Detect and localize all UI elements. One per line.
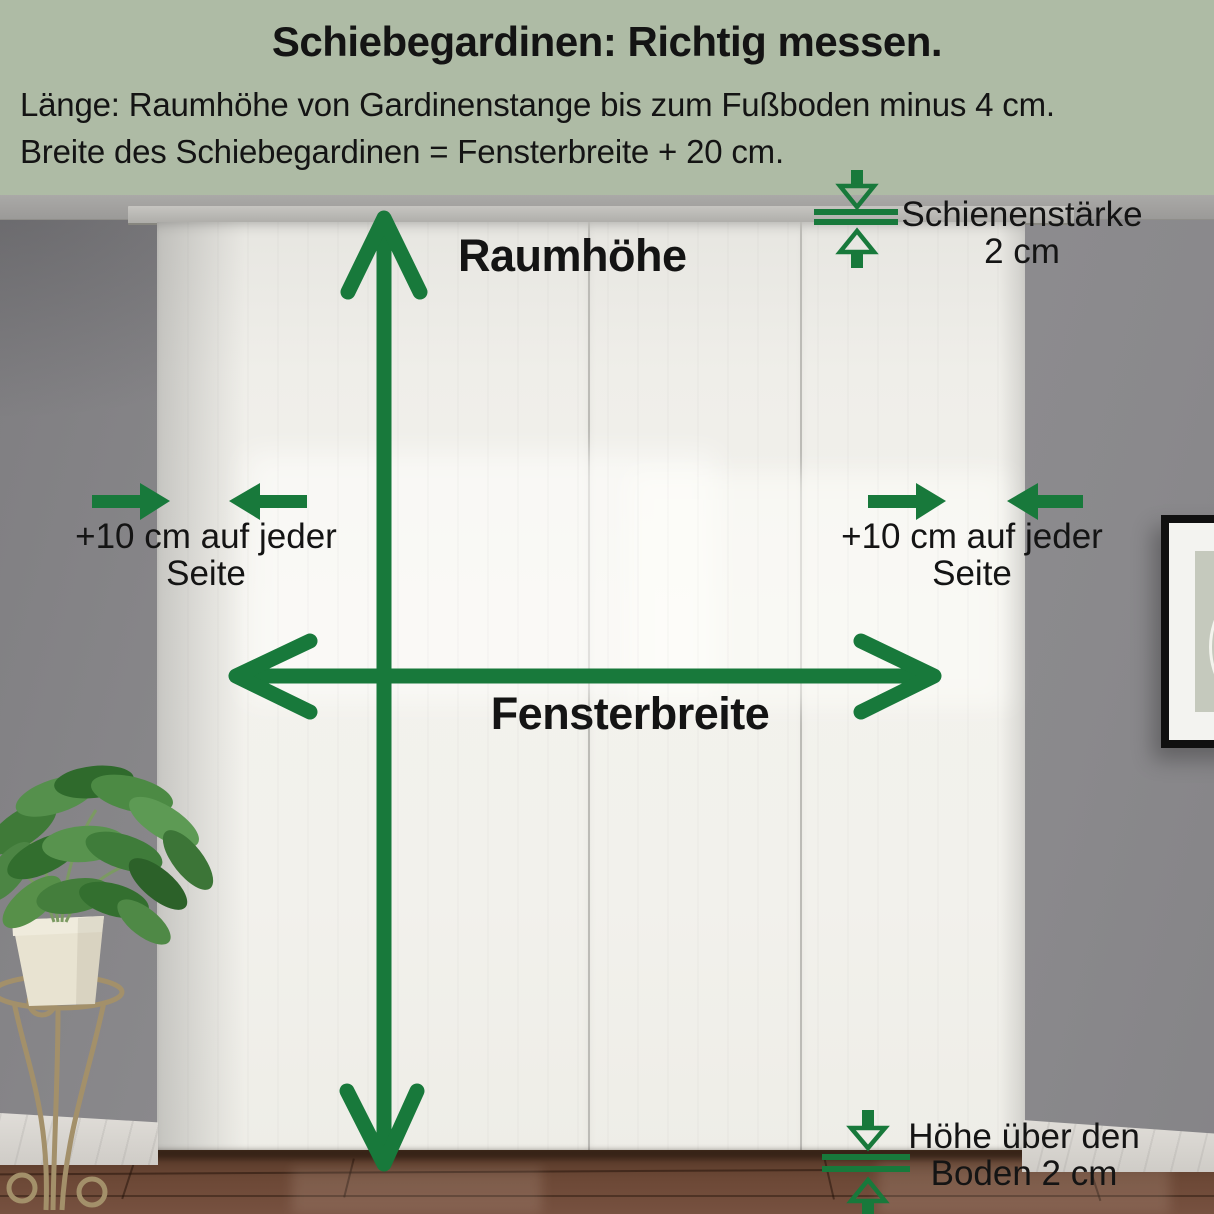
plant-stand [0, 976, 122, 1210]
instruction-line-2: Breite des Schiebegardinen = Fensterbrei… [20, 133, 784, 171]
curtain-floor-shadow [150, 1150, 1030, 1159]
picture-art [1195, 551, 1214, 712]
measuring-infographic: Schiebegardinen: Richtig messen. Länge: … [0, 0, 1214, 1214]
side-extension-left-label: +10 cm auf jeder Seite [75, 518, 337, 592]
header-band: Schiebegardinen: Richtig messen. Länge: … [0, 0, 1214, 195]
instruction-line-1: Länge: Raumhöhe von Gardinenstange bis z… [20, 86, 1055, 124]
side-extension-left-line1: +10 cm auf jeder [75, 518, 337, 555]
floor-gap-line2: Boden 2 cm [908, 1155, 1140, 1192]
window-width-label: Fensterbreite [491, 688, 770, 740]
picture-mat [1169, 523, 1214, 740]
floor-reflection [292, 1168, 542, 1214]
plant-pot [12, 916, 104, 1006]
page-title: Schiebegardinen: Richtig messen. [0, 18, 1214, 66]
potted-plant [0, 740, 228, 1214]
side-extension-left-line2: Seite [75, 555, 337, 592]
rail-thickness-line1: Schienenstärke [901, 196, 1142, 233]
side-extension-right-line1: +10 cm auf jeder [841, 518, 1103, 555]
rail-thickness-label: Schienenstärke 2 cm [901, 196, 1142, 270]
picture-frame [1161, 515, 1214, 748]
room-height-label: Raumhöhe [458, 230, 687, 282]
floor-gap-line1: Höhe über den [908, 1118, 1140, 1155]
rail-thickness-line2: 2 cm [901, 233, 1142, 270]
tile-grout-line [823, 1156, 835, 1199]
side-extension-right-line2: Seite [841, 555, 1103, 592]
floor-gap-label: Höhe über den Boden 2 cm [908, 1118, 1140, 1192]
side-extension-right-label: +10 cm auf jeder Seite [841, 518, 1103, 592]
